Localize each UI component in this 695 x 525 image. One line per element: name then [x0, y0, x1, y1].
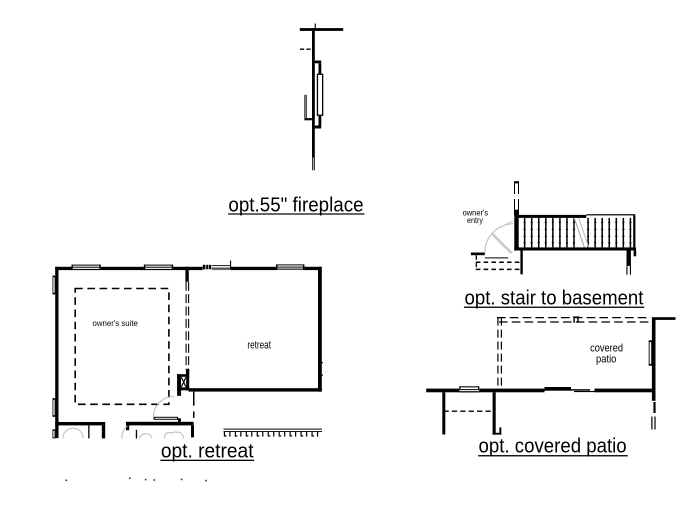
svg-text:retreat: retreat [247, 339, 271, 351]
svg-text:owner's suite: owner's suite [93, 318, 139, 328]
svg-text:entry: entry [467, 215, 484, 225]
svg-text:opt. covered patio: opt. covered patio [479, 435, 627, 457]
svg-text:opt.55" fireplace: opt.55" fireplace [228, 194, 363, 216]
svg-text:patio: patio [596, 354, 616, 366]
svg-text:opt. stair to basement: opt. stair to basement [465, 287, 644, 309]
svg-text:opt. retreat: opt. retreat [161, 440, 254, 462]
svg-text:covered: covered [590, 342, 623, 354]
